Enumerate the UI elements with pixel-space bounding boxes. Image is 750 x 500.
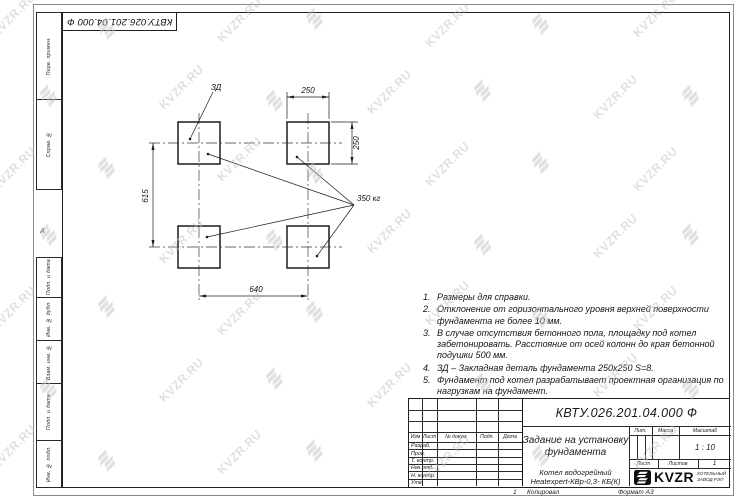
- col-list: Лист: [422, 432, 437, 442]
- note-number: 4.: [423, 363, 437, 374]
- logo-subtext-line1: КОТЕЛЬНЫЙ: [697, 471, 726, 476]
- leader-load-tl: [208, 154, 354, 205]
- note-text: Фундамент под котел разрабатывает проект…: [437, 375, 728, 398]
- leader-zd: [190, 92, 213, 139]
- load-label: 350 кг: [357, 194, 380, 203]
- row-nachotd: Нач.отд.: [411, 465, 434, 471]
- note-item: 1.Размеры для справки.: [423, 292, 728, 303]
- col-doc: № докум.: [437, 432, 476, 442]
- dim-615-left: 615: [141, 189, 150, 203]
- mass-label: Масса: [652, 426, 679, 435]
- note-number: 1.: [423, 292, 437, 303]
- leader-load-br: [317, 205, 354, 256]
- copied-label: Копировал: [527, 489, 559, 496]
- row-prov: Пров.: [411, 451, 425, 457]
- logo-subtext-line2: ЗАВОД РЭП: [697, 477, 723, 482]
- company-logo: KVZR КОТЕЛЬНЫЙ ЗАВОД РЭП: [629, 468, 731, 486]
- note-text: В случае отсутствия бетонного пола, площ…: [437, 328, 728, 362]
- note-item: 4.ЗД – Закладная деталь фундамента 250х2…: [423, 363, 728, 374]
- note-item: 2.Отклонение от горизонтального уровня в…: [423, 304, 728, 327]
- note-text: Отклонение от горизонтального уровня вер…: [437, 304, 728, 327]
- dimension-texts: ЗД 250 250 615 640 350 кг: [141, 83, 380, 294]
- row-tkontr: Т. контр.: [411, 458, 434, 464]
- note-number: 2.: [423, 304, 437, 327]
- sheet-tick: 1: [513, 489, 517, 496]
- drawing-sheet: Перв. примен. Справ. № Подп. и дата Инв.…: [0, 0, 750, 500]
- embed-plate-label: ЗД: [211, 83, 222, 92]
- note-text: ЗД – Закладная деталь фундамента 250х250…: [437, 363, 728, 374]
- col-izm: Изм: [409, 432, 422, 442]
- row-razrab: Разраб.: [411, 443, 431, 449]
- logo-subtext: КОТЕЛЬНЫЙ ЗАВОД РЭП: [697, 471, 726, 482]
- title-block: Изм Лист № докум. Подп. Дата Разраб. Про…: [408, 398, 730, 488]
- note-number: 5.: [423, 375, 437, 398]
- format-label: Формат А3: [618, 489, 654, 496]
- product-name-line1: Котел водогрейный: [539, 468, 611, 477]
- product-name: Котел водогрейный Heatexpert-КВр-0,3- КБ…: [522, 468, 629, 486]
- note-number: 3.: [423, 328, 437, 362]
- lit-label: Лит.: [629, 426, 652, 435]
- dimension-arrows: [152, 96, 354, 298]
- dim-640-bottom: 640: [249, 285, 263, 294]
- scale-value: 1 : 10: [679, 435, 731, 459]
- doc-number: КВТУ.026.201.04.000 Ф: [522, 399, 731, 426]
- logo-text: KVZR: [654, 469, 694, 485]
- dim-250-top: 250: [300, 86, 315, 95]
- col-podp: Подп.: [476, 432, 498, 442]
- leader-load-bl: [207, 205, 354, 237]
- row-nkontr: Н. контр.: [411, 473, 435, 479]
- dim-250-right: 250: [352, 136, 361, 151]
- sheet-label: Лист: [629, 459, 658, 468]
- note-text: Размеры для справки.: [437, 292, 728, 303]
- kvzr-logo-icon: [634, 470, 651, 485]
- notes-list: 1.Размеры для справки. 2.Отклонение от г…: [423, 292, 728, 398]
- sheets-value: 1: [698, 459, 731, 468]
- note-item: 3.В случае отсутствия бетонного пола, пл…: [423, 328, 728, 362]
- note-item: 5.Фундамент под котел разрабатывает прое…: [423, 375, 728, 398]
- product-name-line2: Heatexpert-КВр-0,3- КБ(К): [530, 477, 620, 486]
- drawing-title: Задание на установку фундамента: [522, 426, 629, 468]
- col-data: Дата: [498, 432, 522, 442]
- drawing-title-line1: Задание на установку: [523, 435, 629, 448]
- embed-plates: [178, 122, 329, 268]
- sheets-label: Листов: [658, 459, 698, 468]
- row-utv: Утв.: [411, 480, 423, 486]
- drawing-title-line2: фундамента: [545, 447, 606, 460]
- scale-label: Масштаб: [679, 426, 731, 435]
